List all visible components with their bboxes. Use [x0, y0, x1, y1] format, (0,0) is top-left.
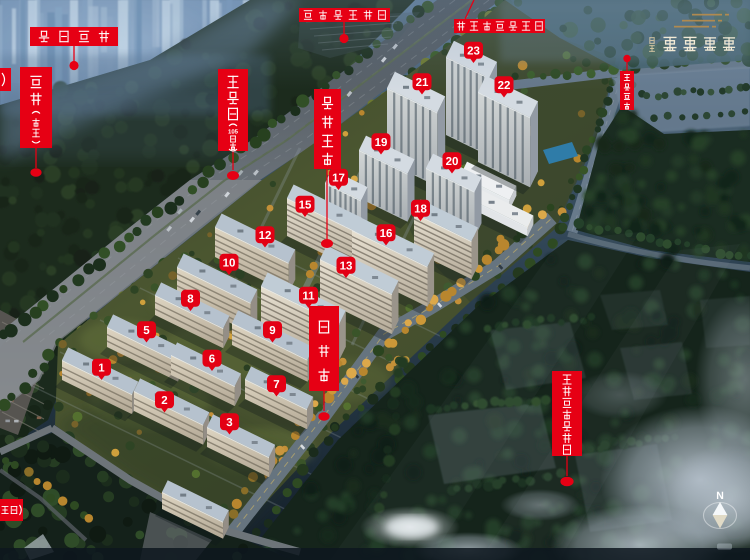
svg-text:17: 17 [332, 173, 345, 185]
svg-text:7: 7 [273, 379, 279, 391]
svg-text:1: 1 [98, 363, 105, 375]
svg-text:5: 5 [143, 325, 150, 337]
svg-text:12: 12 [259, 230, 272, 242]
svg-text:15: 15 [299, 200, 312, 212]
svg-text:105: 105 [228, 129, 239, 136]
svg-text:16: 16 [380, 228, 393, 240]
svg-text:6: 6 [209, 354, 215, 366]
svg-text:10: 10 [223, 258, 236, 270]
svg-text:2: 2 [161, 395, 167, 407]
svg-text:8: 8 [187, 294, 194, 306]
svg-text:20: 20 [446, 156, 459, 168]
svg-text:3: 3 [226, 417, 232, 429]
svg-text:9: 9 [269, 325, 275, 337]
svg-text:N: N [716, 490, 724, 502]
svg-text:21: 21 [416, 77, 429, 89]
svg-text:18: 18 [414, 204, 427, 216]
svg-text:19: 19 [375, 137, 388, 149]
svg-text:23: 23 [467, 46, 480, 58]
svg-text:11: 11 [302, 291, 315, 303]
svg-text:13: 13 [340, 261, 353, 273]
svg-text:22: 22 [498, 80, 511, 92]
